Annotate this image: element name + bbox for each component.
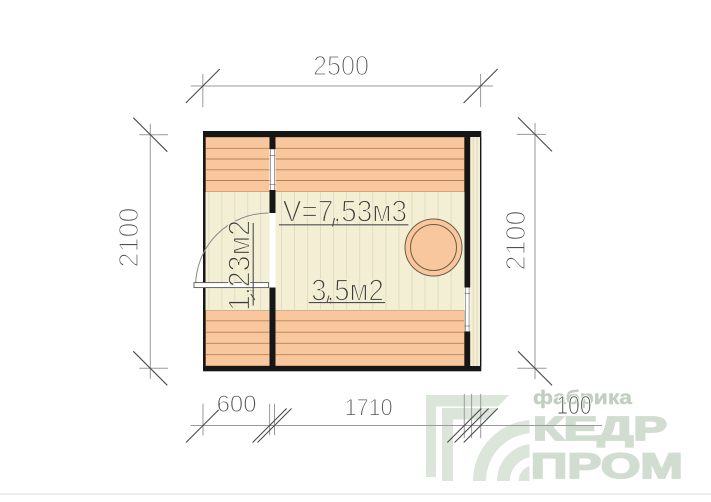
svg-text:КЕДР: КЕДР [533,410,667,447]
svg-text:1710: 1710 [345,395,393,422]
svg-text:2500: 2500 [313,50,369,81]
svg-text:100: 100 [557,390,592,420]
svg-text:600: 600 [217,391,257,418]
svg-text:1,23м2: 1,23м2 [222,220,257,311]
svg-text:ПРОМ: ПРОМ [531,447,683,486]
svg-text:2100: 2100 [113,208,144,268]
svg-text:2100: 2100 [500,211,531,271]
svg-text:V=7,53м3: V=7,53м3 [283,194,407,229]
